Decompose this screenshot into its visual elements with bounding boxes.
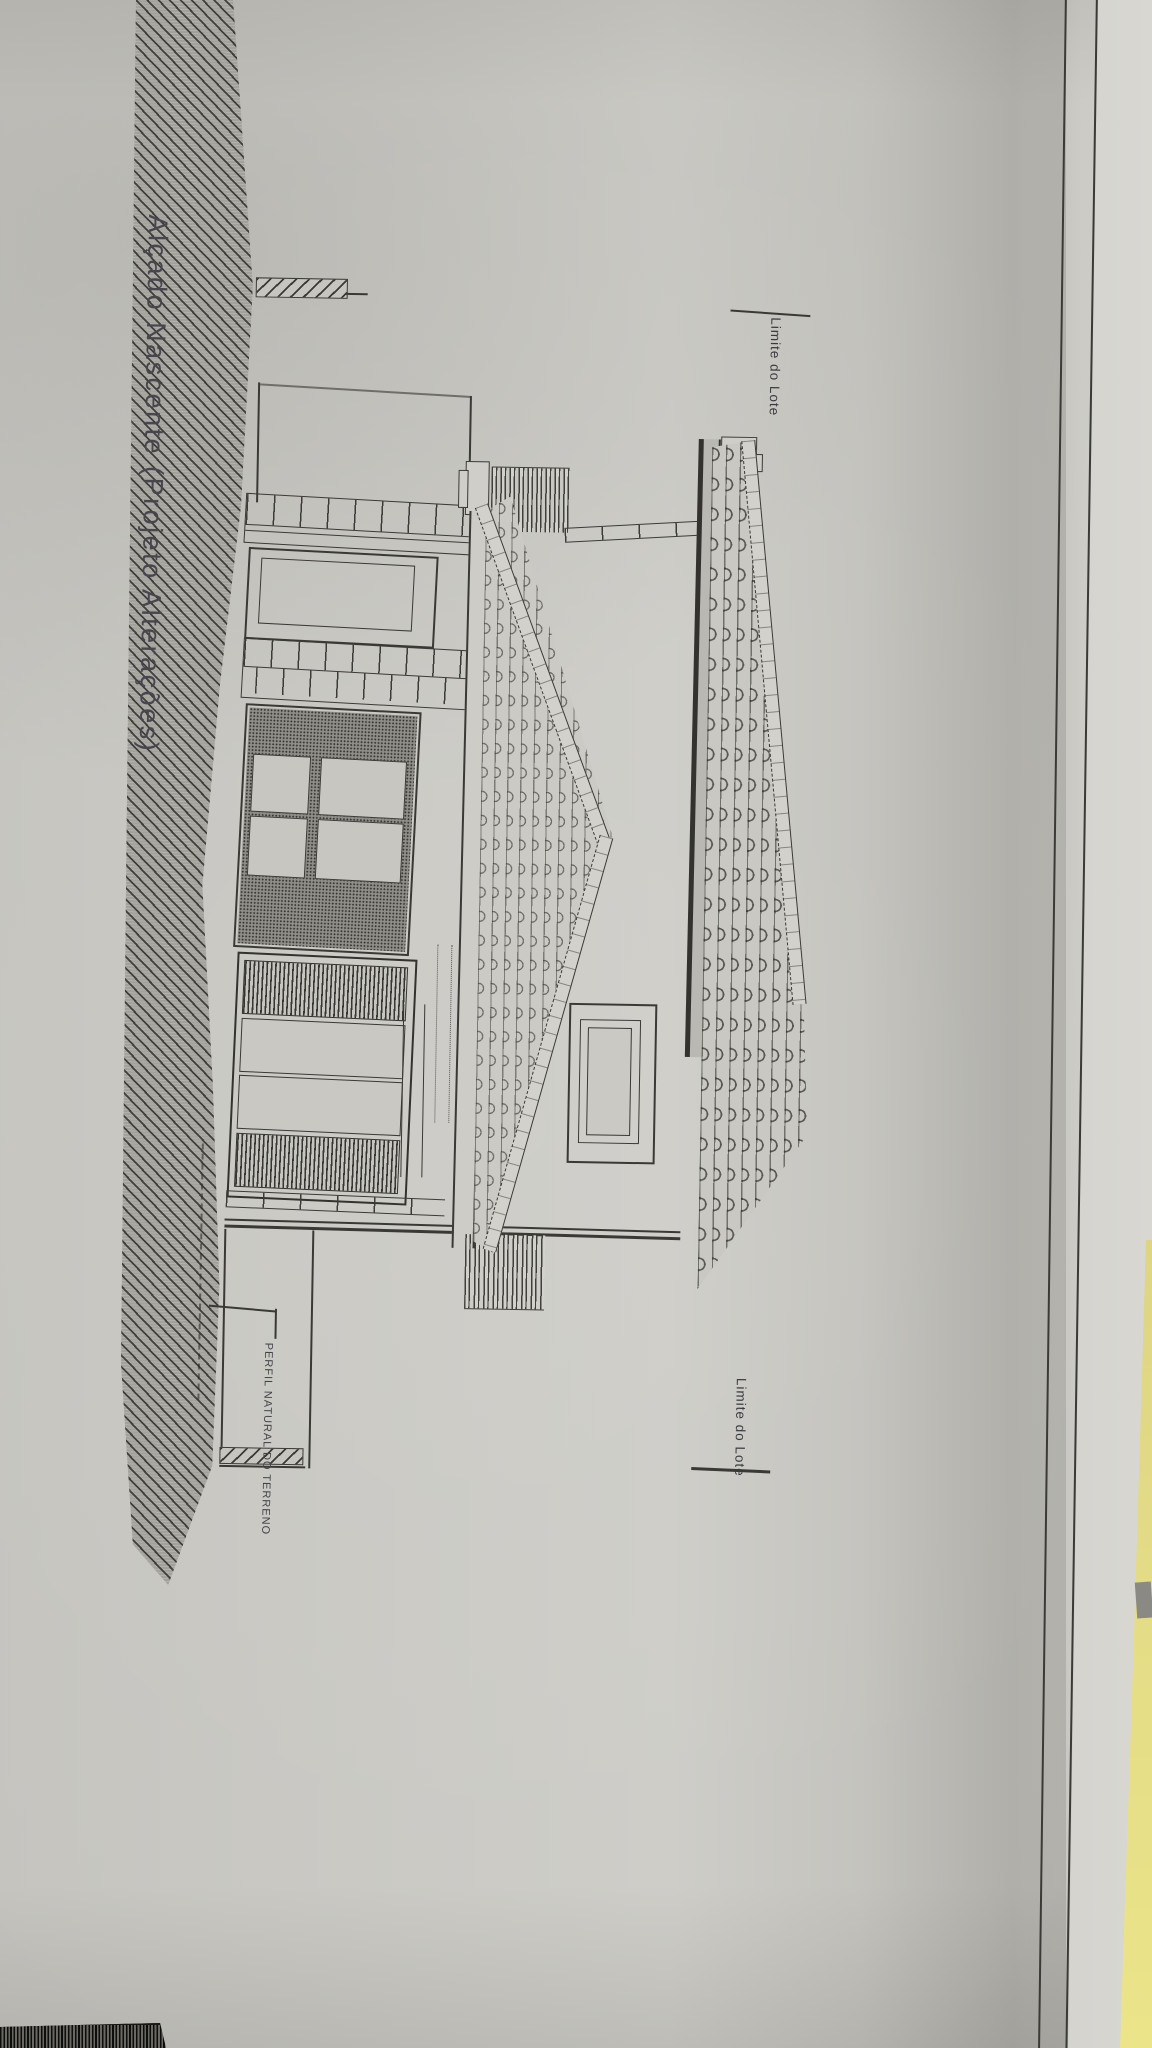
window-b-pane [250,754,311,815]
lot-boundary-label-bottom: Limite do Lote [732,1378,749,1477]
brick-course-2 [241,638,472,711]
louvre-panel [237,1075,403,1136]
louvre-slats [242,960,408,1021]
louvre-panel [239,1018,405,1079]
lot-boundary-line-bottom [691,1467,770,1473]
sill-course [226,1190,446,1216]
eave-tile-comb-bottom [464,1234,545,1310]
louvre-opening-c [227,952,418,1206]
window-a [244,547,439,649]
window-b-mesh-grid [233,703,422,956]
terrain-profile-label: PERFIL NATURAL DO TERRENO [259,1343,274,1536]
louvre-slats [234,1133,400,1194]
boundary-wall-section-top [256,277,348,299]
elevation-drawing: Alçado Nascente (Projeto Alterações) Lim… [0,0,1152,2048]
wall-corner-line [256,382,260,502]
lot-boundary-label-top: Limite do Lote [767,317,784,416]
window-b-pane [247,816,308,879]
lower-wall-left-edge [221,1229,227,1449]
wall-top-edge [260,383,472,397]
porch-ridge-cap-step [458,470,469,508]
terrain-leader-drop [274,1309,276,1339]
photo-of-architectural-drawing: Alçado Nascente (Projeto Alterações) Lim… [0,0,1152,2048]
lot-boundary-line-top [730,309,810,317]
terrain-leader-line [209,1305,276,1312]
corner-quoin-line [564,520,711,543]
boundary-wall-top-line [346,293,368,295]
brick-course-1 [243,493,473,556]
window-d-inner-frame [586,1027,632,1136]
window-b-pane [318,757,407,819]
window-b-pane [315,819,404,883]
downpipe-dotted [434,945,452,1123]
window-a-inner-frame [258,558,415,632]
window-d [567,1003,658,1165]
lower-wall-right-edge [308,1230,315,1468]
door-jamb-lines [400,1004,425,1177]
